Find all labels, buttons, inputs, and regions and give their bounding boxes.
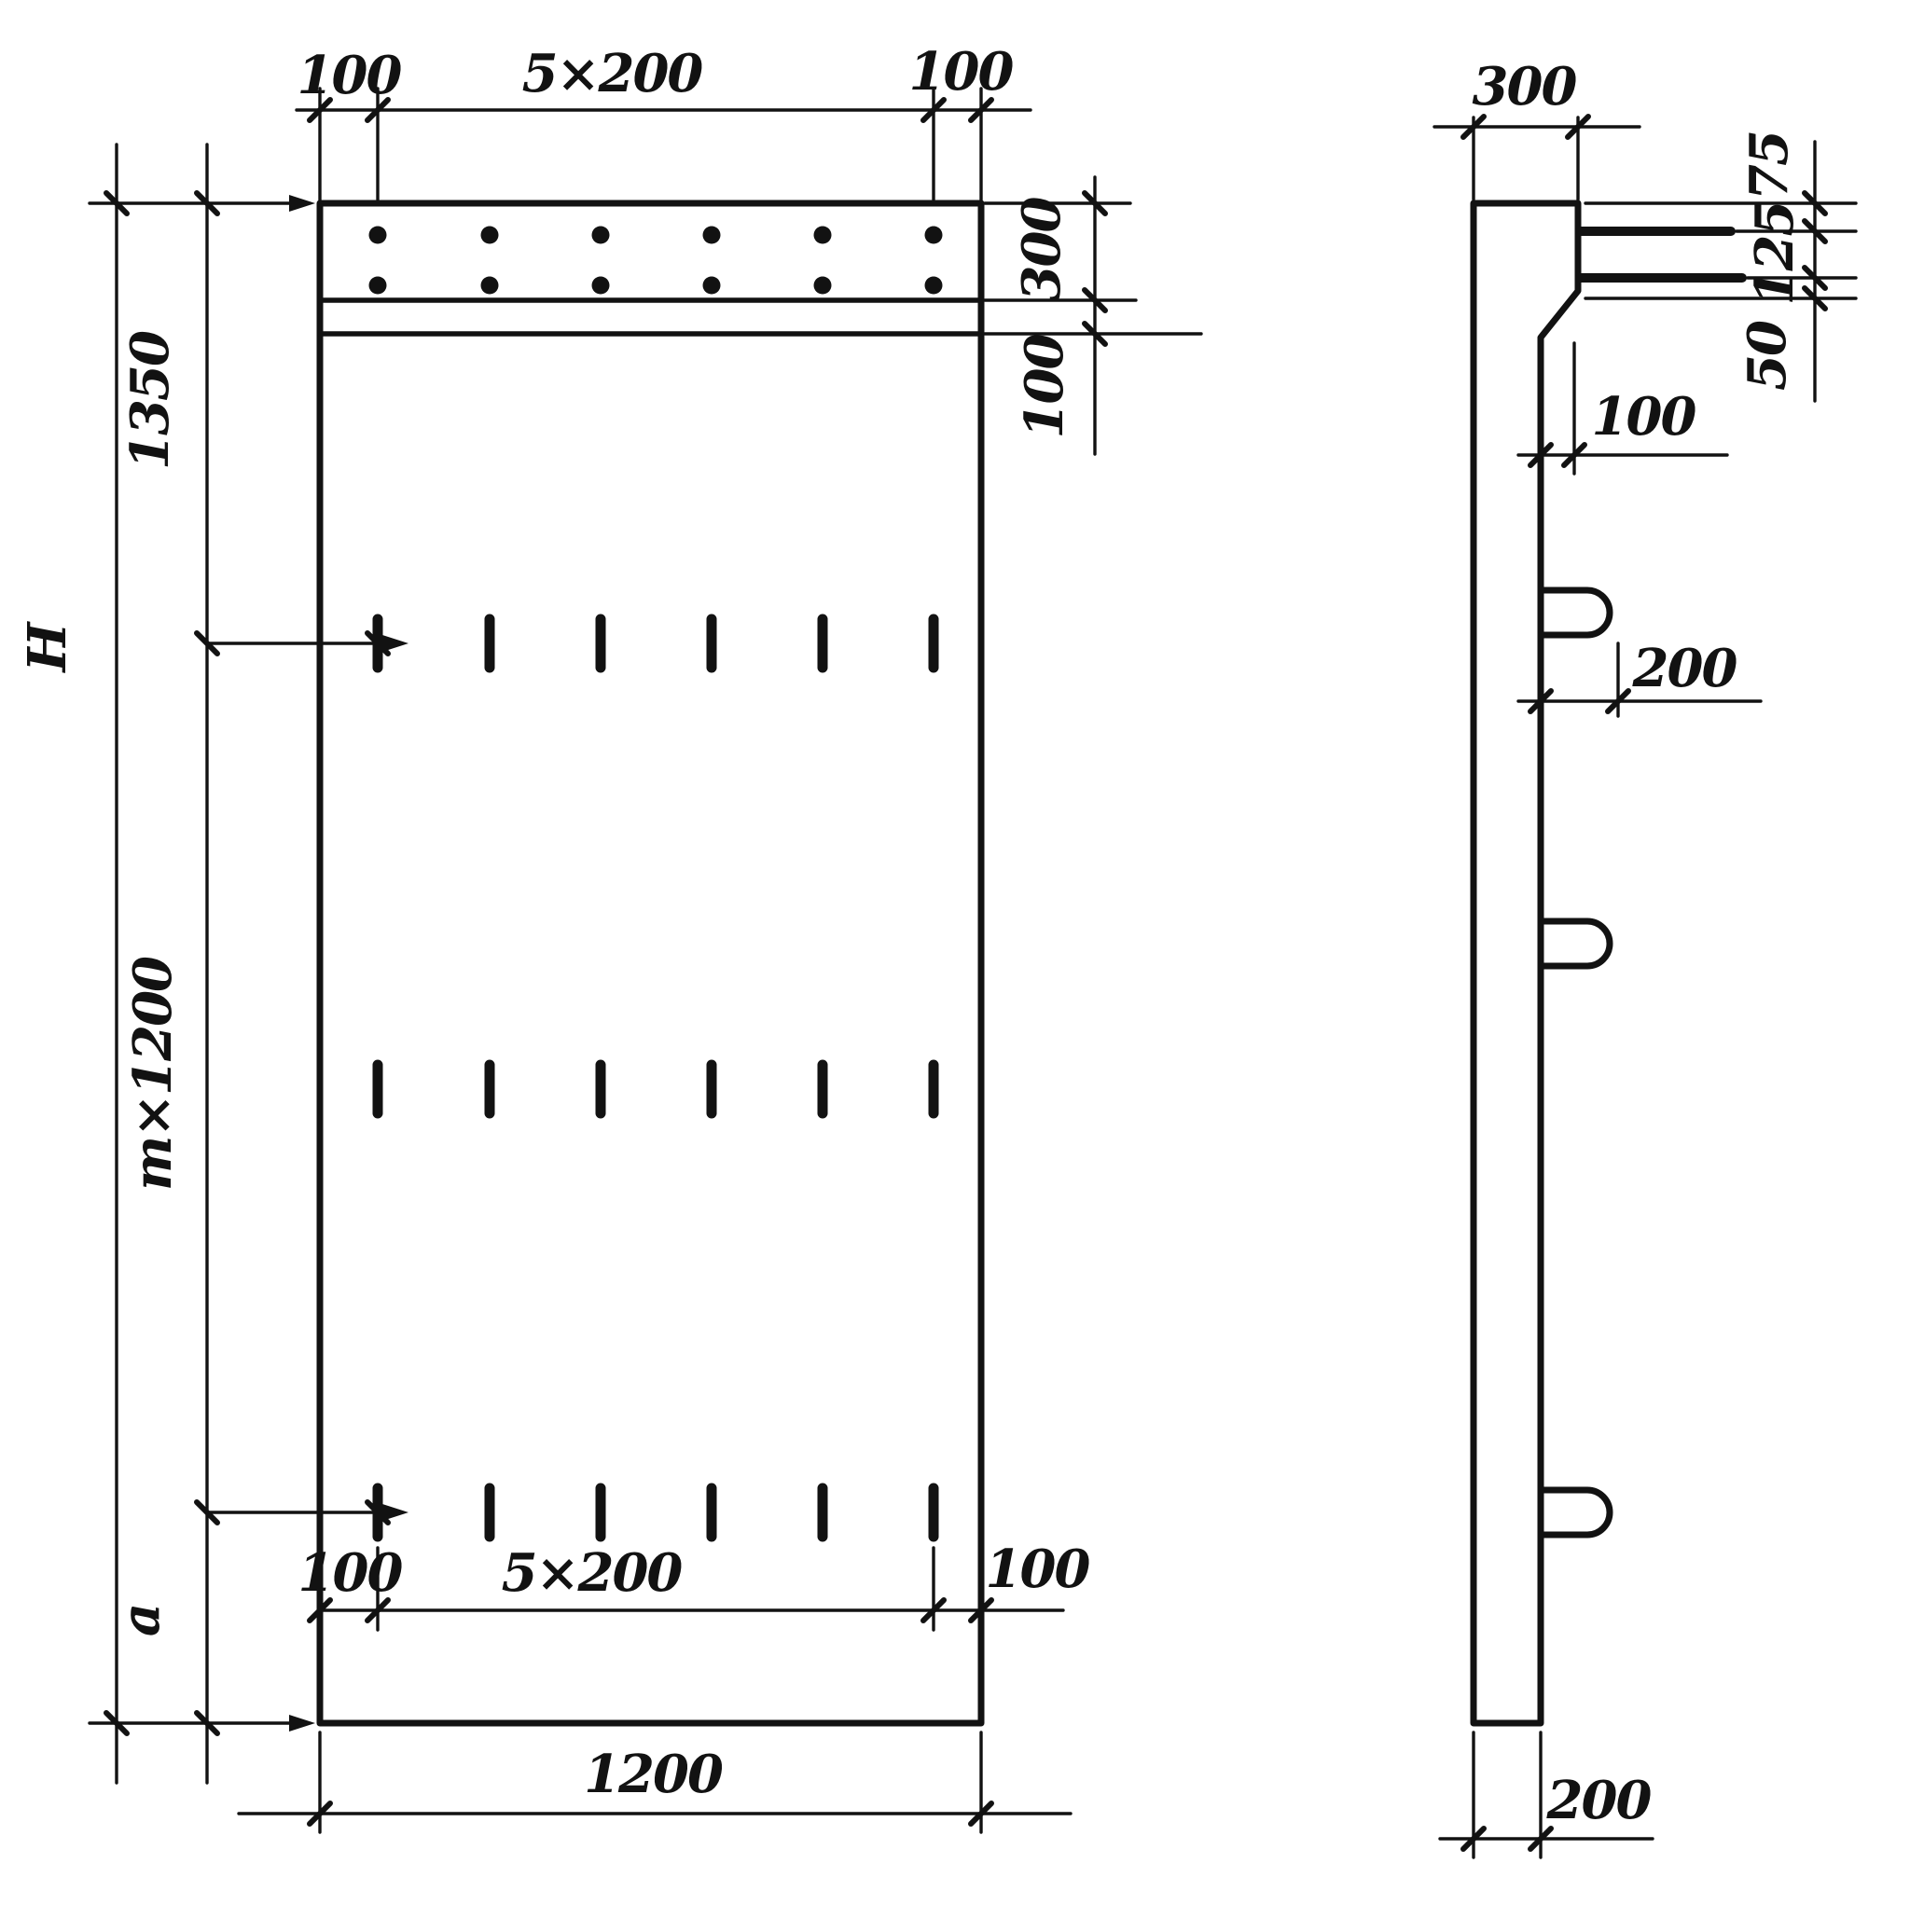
dim-bottom-left-margin: 100 — [298, 1542, 404, 1604]
anchor-dot-grid — [369, 227, 943, 295]
front-overall-width-dimension: 1200 — [239, 1732, 1071, 1832]
front-bottom-inner-dimension: 100 5×200 100 — [298, 1539, 1091, 1630]
dim-top-left-margin: 100 — [298, 45, 403, 106]
loop-dash-row-1 — [378, 619, 934, 668]
dim-bottom-segment: a — [110, 1605, 172, 1636]
dim-overall-width: 1200 — [584, 1744, 724, 1805]
side-bottom-dimension: 200 — [1440, 1732, 1653, 1857]
dim-side-bar-spacing: 125 — [1744, 202, 1806, 306]
dim-side-step-depth: 100 — [1592, 386, 1697, 448]
side-top-dimension: 300 — [1434, 56, 1640, 200]
side-loop-2 — [1541, 921, 1610, 966]
loop-dash-row-2 — [378, 1065, 934, 1113]
loop-dash-row-3 — [378, 1488, 934, 1537]
dim-top-right-margin: 100 — [909, 41, 1015, 103]
dim-side-bottom-offset: 50 — [1737, 320, 1798, 391]
front-panel-outline — [320, 203, 981, 1723]
dim-side-bottom-width: 200 — [1546, 1770, 1653, 1831]
panel-technical-drawing: 100 5×200 100 300 100 — [0, 0, 1910, 1932]
side-loop-3 — [1541, 1490, 1610, 1535]
front-right-dimension: 300 100 — [985, 177, 1201, 454]
dim-top-segment: 1350 — [119, 330, 181, 470]
dim-band-height: 300 — [1011, 197, 1073, 302]
dim-top-spacing: 5×200 — [522, 43, 704, 104]
drawing-sheet: 100 5×200 100 300 100 — [0, 0, 1910, 1932]
side-step-dimension: 100 — [1518, 343, 1727, 474]
front-top-dimension: 100 5×200 100 — [297, 41, 1031, 201]
front-left-dimension: H 1350 m×1200 a — [17, 145, 408, 1783]
dim-bottom-spacing: 5×200 — [502, 1542, 684, 1604]
side-loop-1 — [1541, 590, 1610, 635]
dim-overall-height: H — [17, 620, 78, 673]
side-right-dimension: 75 125 50 — [1585, 131, 1856, 401]
dim-lip-height: 100 — [1014, 334, 1075, 439]
dim-bottom-right-margin: 100 — [986, 1539, 1091, 1600]
side-loop-dimension: 200 — [1518, 638, 1761, 716]
dim-side-loop-length: 200 — [1632, 638, 1738, 699]
dim-middle-segment: m×1200 — [122, 956, 184, 1191]
dim-side-top-width: 300 — [1473, 56, 1578, 117]
dim-side-top-offset: 75 — [1738, 131, 1800, 200]
side-view: 300 75 125 50 100 — [1434, 56, 1856, 1857]
front-view: 100 5×200 100 300 100 — [17, 41, 1201, 1832]
